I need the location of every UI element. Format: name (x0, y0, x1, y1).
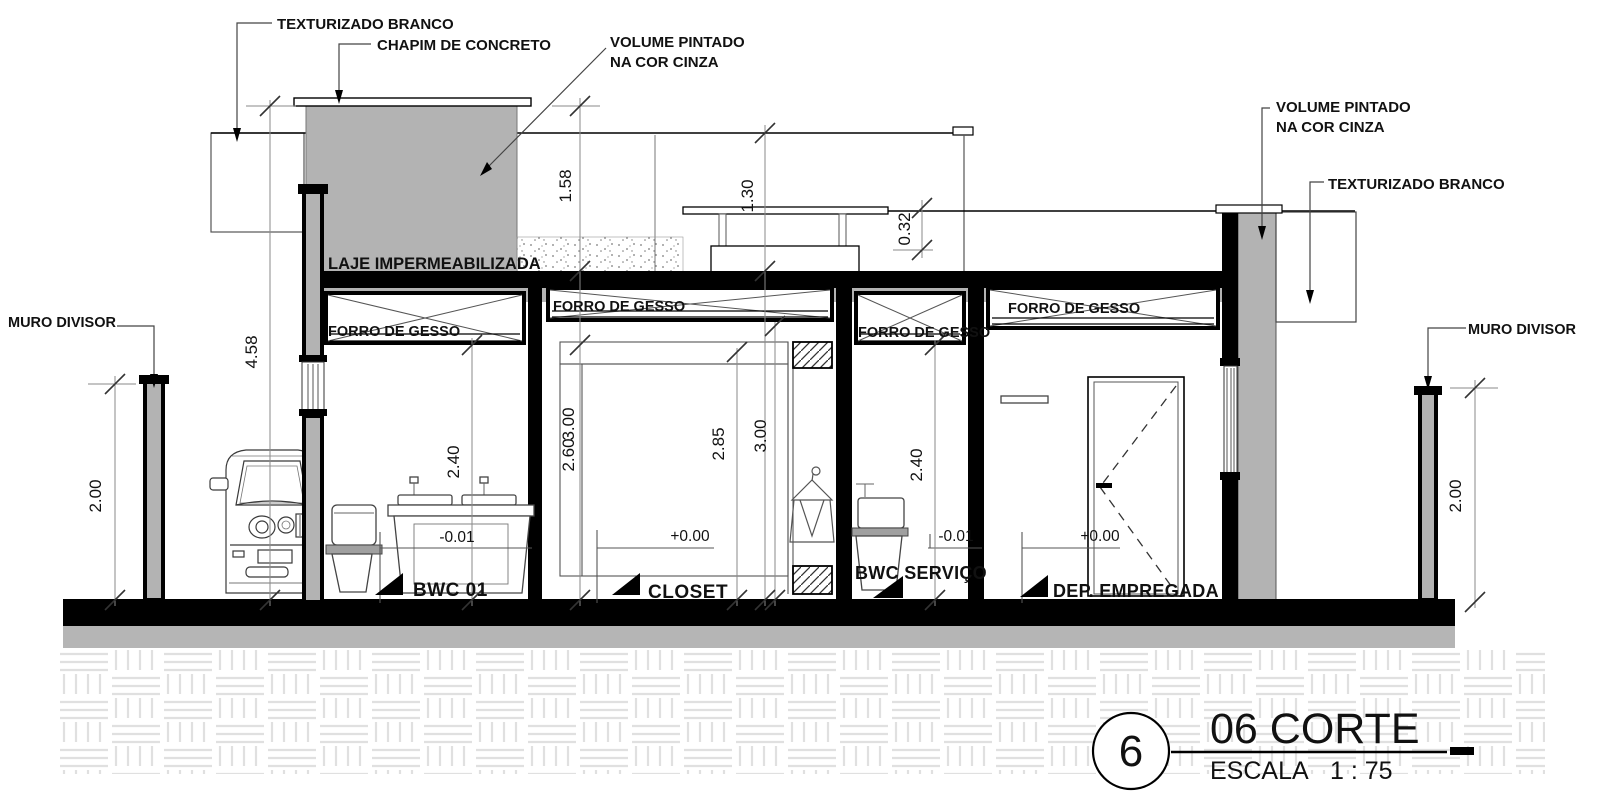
hanger-icon (790, 467, 834, 542)
exterior-wall-left (298, 184, 328, 602)
shelf-dep (1001, 396, 1048, 403)
laje-slab (304, 271, 1238, 288)
label-volume-pintado-left-1: VOLUME PINTADO (610, 34, 745, 51)
dim-muro-right: 2.00 (1446, 479, 1465, 512)
dim-closet-wardrobe: 2.85 (709, 427, 728, 460)
label-texturizado-branco-right: TEXTURIZADO BRANCO (1328, 176, 1505, 193)
label-forro-bwc01: FORRO DE GESSO (328, 324, 460, 340)
label-volume-pintado-left-2: NA COR CINZA (610, 54, 719, 71)
dim-parapet-left: 1.58 (556, 169, 575, 202)
room-label-dep-empregada: DEP. EMPREGADA (1053, 581, 1219, 601)
door-dep-empregada (1088, 377, 1184, 596)
label-forro-closet: FORRO DE GESSO (553, 299, 685, 315)
room-label-bwc-servico: BWC SERVIÇO (855, 563, 987, 583)
section-drawing: TEXTURIZADO BRANCO CHAPIM DE CONCRETO VO… (0, 0, 1601, 800)
chapim-concrete-cap (294, 98, 531, 106)
dim-bwc01-height: 2.40 (444, 445, 463, 478)
hatched-block-top (793, 342, 832, 368)
room-label-closet: CLOSET (648, 582, 728, 603)
label-forro-dep: FORRO DE GESSO (1008, 301, 1140, 317)
level-bwc-servico: -0.01 (938, 528, 973, 545)
exterior-wall-right (1220, 213, 1240, 602)
dim-parapet-center: 1.30 (738, 179, 757, 212)
ground-subbase (63, 626, 1455, 648)
gray-volume-left (306, 106, 517, 272)
label-muro-divisor-left: MURO DIVISOR (8, 315, 116, 331)
dim-closet-height-b: 3.00 (559, 407, 578, 440)
level-closet: +0.00 (670, 528, 710, 545)
wardrobe-closet (560, 342, 793, 594)
title-block: 6 06 CORTE ESCALA 1 : 75 (1093, 705, 1474, 789)
dim-parapet-right: 0.32 (895, 212, 914, 245)
label-muro-divisor-right: MURO DIVISOR (1468, 322, 1576, 338)
label-laje-impermeabilizada: LAJE IMPERMEABILIZADA (328, 255, 541, 273)
dim-muro-left: 2.00 (86, 479, 105, 512)
wall-closet-bwcservico (836, 271, 852, 602)
roof-deck-table (683, 207, 888, 272)
section-marker-dep (1020, 575, 1048, 597)
white-volume-left (211, 133, 304, 232)
chapim-right (1216, 205, 1282, 213)
level-bwc01: -0.01 (439, 529, 474, 546)
muro-divisor-left-wall (139, 375, 169, 600)
dim-bwc-servico-height: 2.40 (907, 448, 926, 481)
dim-closet-ceiling: 3.00 (751, 419, 770, 452)
level-dep: +0.00 (1080, 528, 1120, 545)
label-volume-pintado-right-2: NA COR CINZA (1276, 119, 1385, 136)
roof-gravel-hatch (517, 237, 683, 272)
section-marker-bwc01 (375, 573, 403, 595)
room-label-bwc01: BWC 01 (413, 580, 488, 601)
dim-closet-height-a: 2.60 (559, 438, 578, 471)
wall-bwcservico-dep (968, 271, 984, 602)
muro-divisor-right-wall (1414, 386, 1442, 600)
dim-total-height: 4.58 (242, 335, 261, 368)
ground-slab (63, 599, 1455, 626)
detail-number: 6 (1119, 727, 1143, 776)
label-chapim-de-concreto: CHAPIM DE CONCRETO (377, 37, 551, 54)
drawing-title: 06 CORTE (1210, 705, 1420, 753)
scale-value: 1 : 75 (1330, 757, 1393, 785)
wall-bwc01-closet (528, 271, 542, 602)
toilet-bwc01 (326, 505, 382, 592)
drawing-sheet: TEXTURIZADO BRANCO CHAPIM DE CONCRETO VO… (0, 0, 1601, 800)
car-front-view (210, 450, 316, 593)
white-volume-right (1276, 212, 1356, 322)
label-forro-bwc-servico: FORRO DE GESSO (858, 325, 990, 341)
label-volume-pintado-right-1: VOLUME PINTADO (1276, 99, 1411, 116)
label-texturizado-branco-left: TEXTURIZADO BRANCO (277, 16, 454, 33)
gray-volume-right (1238, 212, 1276, 602)
hatched-block-bottom (793, 566, 832, 594)
scale-label: ESCALA (1210, 757, 1309, 785)
title-end-dash (1450, 747, 1474, 755)
